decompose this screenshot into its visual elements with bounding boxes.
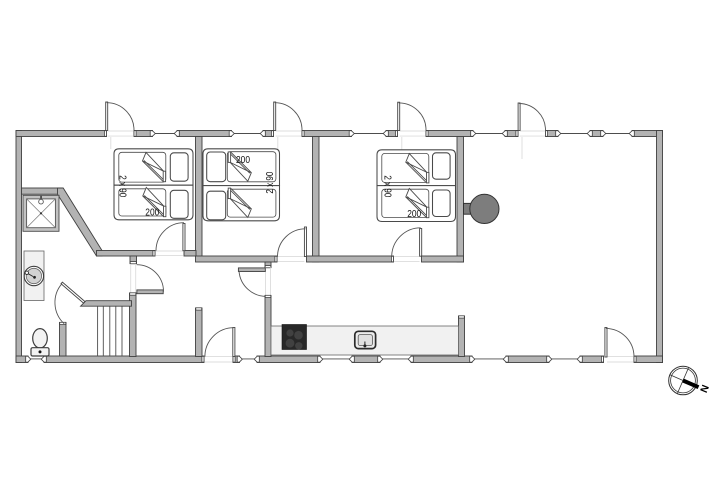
svg-text:200: 200	[407, 209, 421, 220]
svg-text:2 x 90: 2 x 90	[381, 175, 392, 197]
svg-text:2 x 90: 2 x 90	[265, 171, 276, 193]
svg-text:200: 200	[236, 155, 250, 166]
svg-text:200: 200	[145, 208, 159, 219]
svg-text:2 x 90: 2 x 90	[116, 175, 127, 197]
